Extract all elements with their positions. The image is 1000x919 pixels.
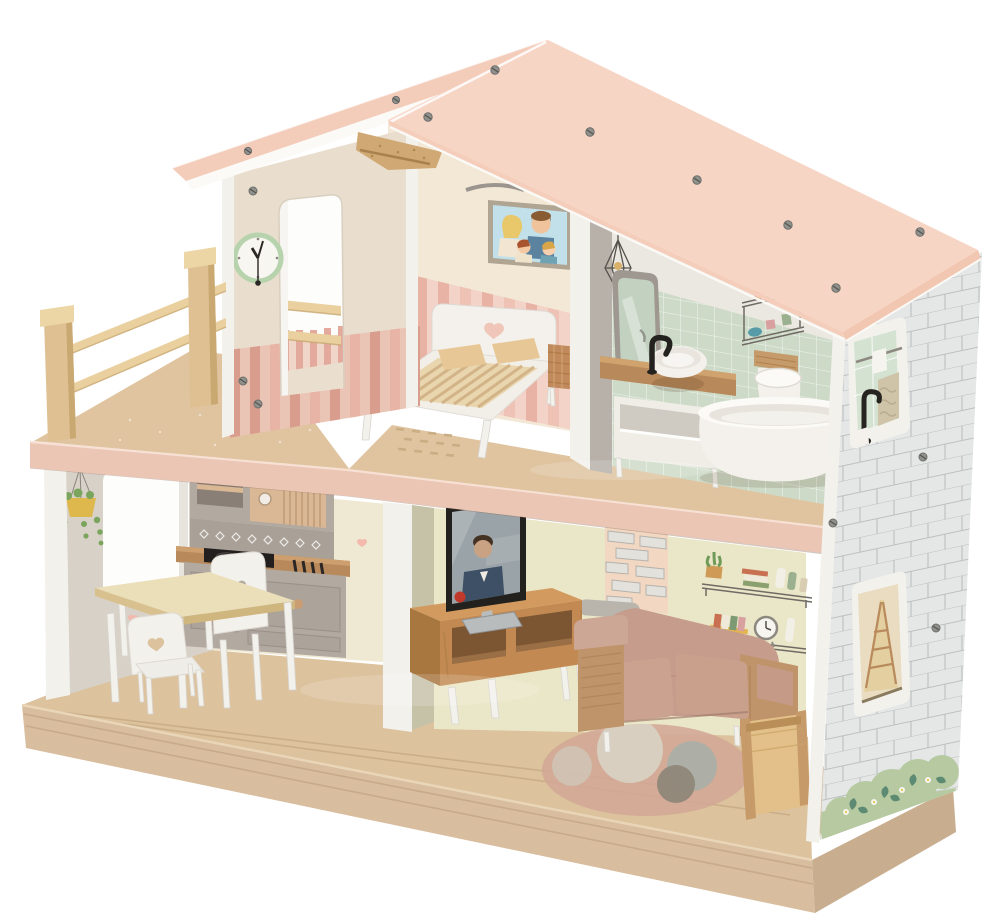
left-wall-edge bbox=[44, 455, 70, 700]
railing-left-post bbox=[40, 305, 76, 442]
gable-right-edge bbox=[406, 136, 418, 409]
storage-basket bbox=[740, 710, 810, 820]
gable-wall bbox=[222, 130, 422, 445]
floor-sheen bbox=[300, 674, 540, 706]
towel-decal bbox=[872, 348, 887, 374]
arm-cushion bbox=[574, 615, 628, 650]
partition-front-edge bbox=[570, 206, 590, 470]
family-portrait bbox=[488, 200, 572, 270]
dollhouse-illustration bbox=[0, 0, 1000, 919]
lower-window bbox=[852, 572, 910, 717]
gable-left-edge bbox=[222, 174, 234, 438]
cup-decal bbox=[765, 319, 775, 329]
sofa-cushion bbox=[676, 654, 749, 719]
plant-pot bbox=[66, 498, 96, 517]
floor-sheen bbox=[530, 460, 710, 480]
dollhouse-product-photo bbox=[0, 0, 1000, 919]
partition-wall bbox=[570, 206, 612, 474]
brick-decal bbox=[605, 527, 668, 614]
partition-inner-face bbox=[590, 216, 612, 474]
rug-circle bbox=[552, 746, 592, 786]
book-stack-decal bbox=[742, 568, 769, 588]
balcony-doorway bbox=[275, 190, 350, 404]
microwave-knob bbox=[259, 493, 271, 505]
upper-window bbox=[848, 318, 910, 449]
rug-circle bbox=[657, 765, 695, 803]
toilet-seat bbox=[755, 369, 801, 388]
